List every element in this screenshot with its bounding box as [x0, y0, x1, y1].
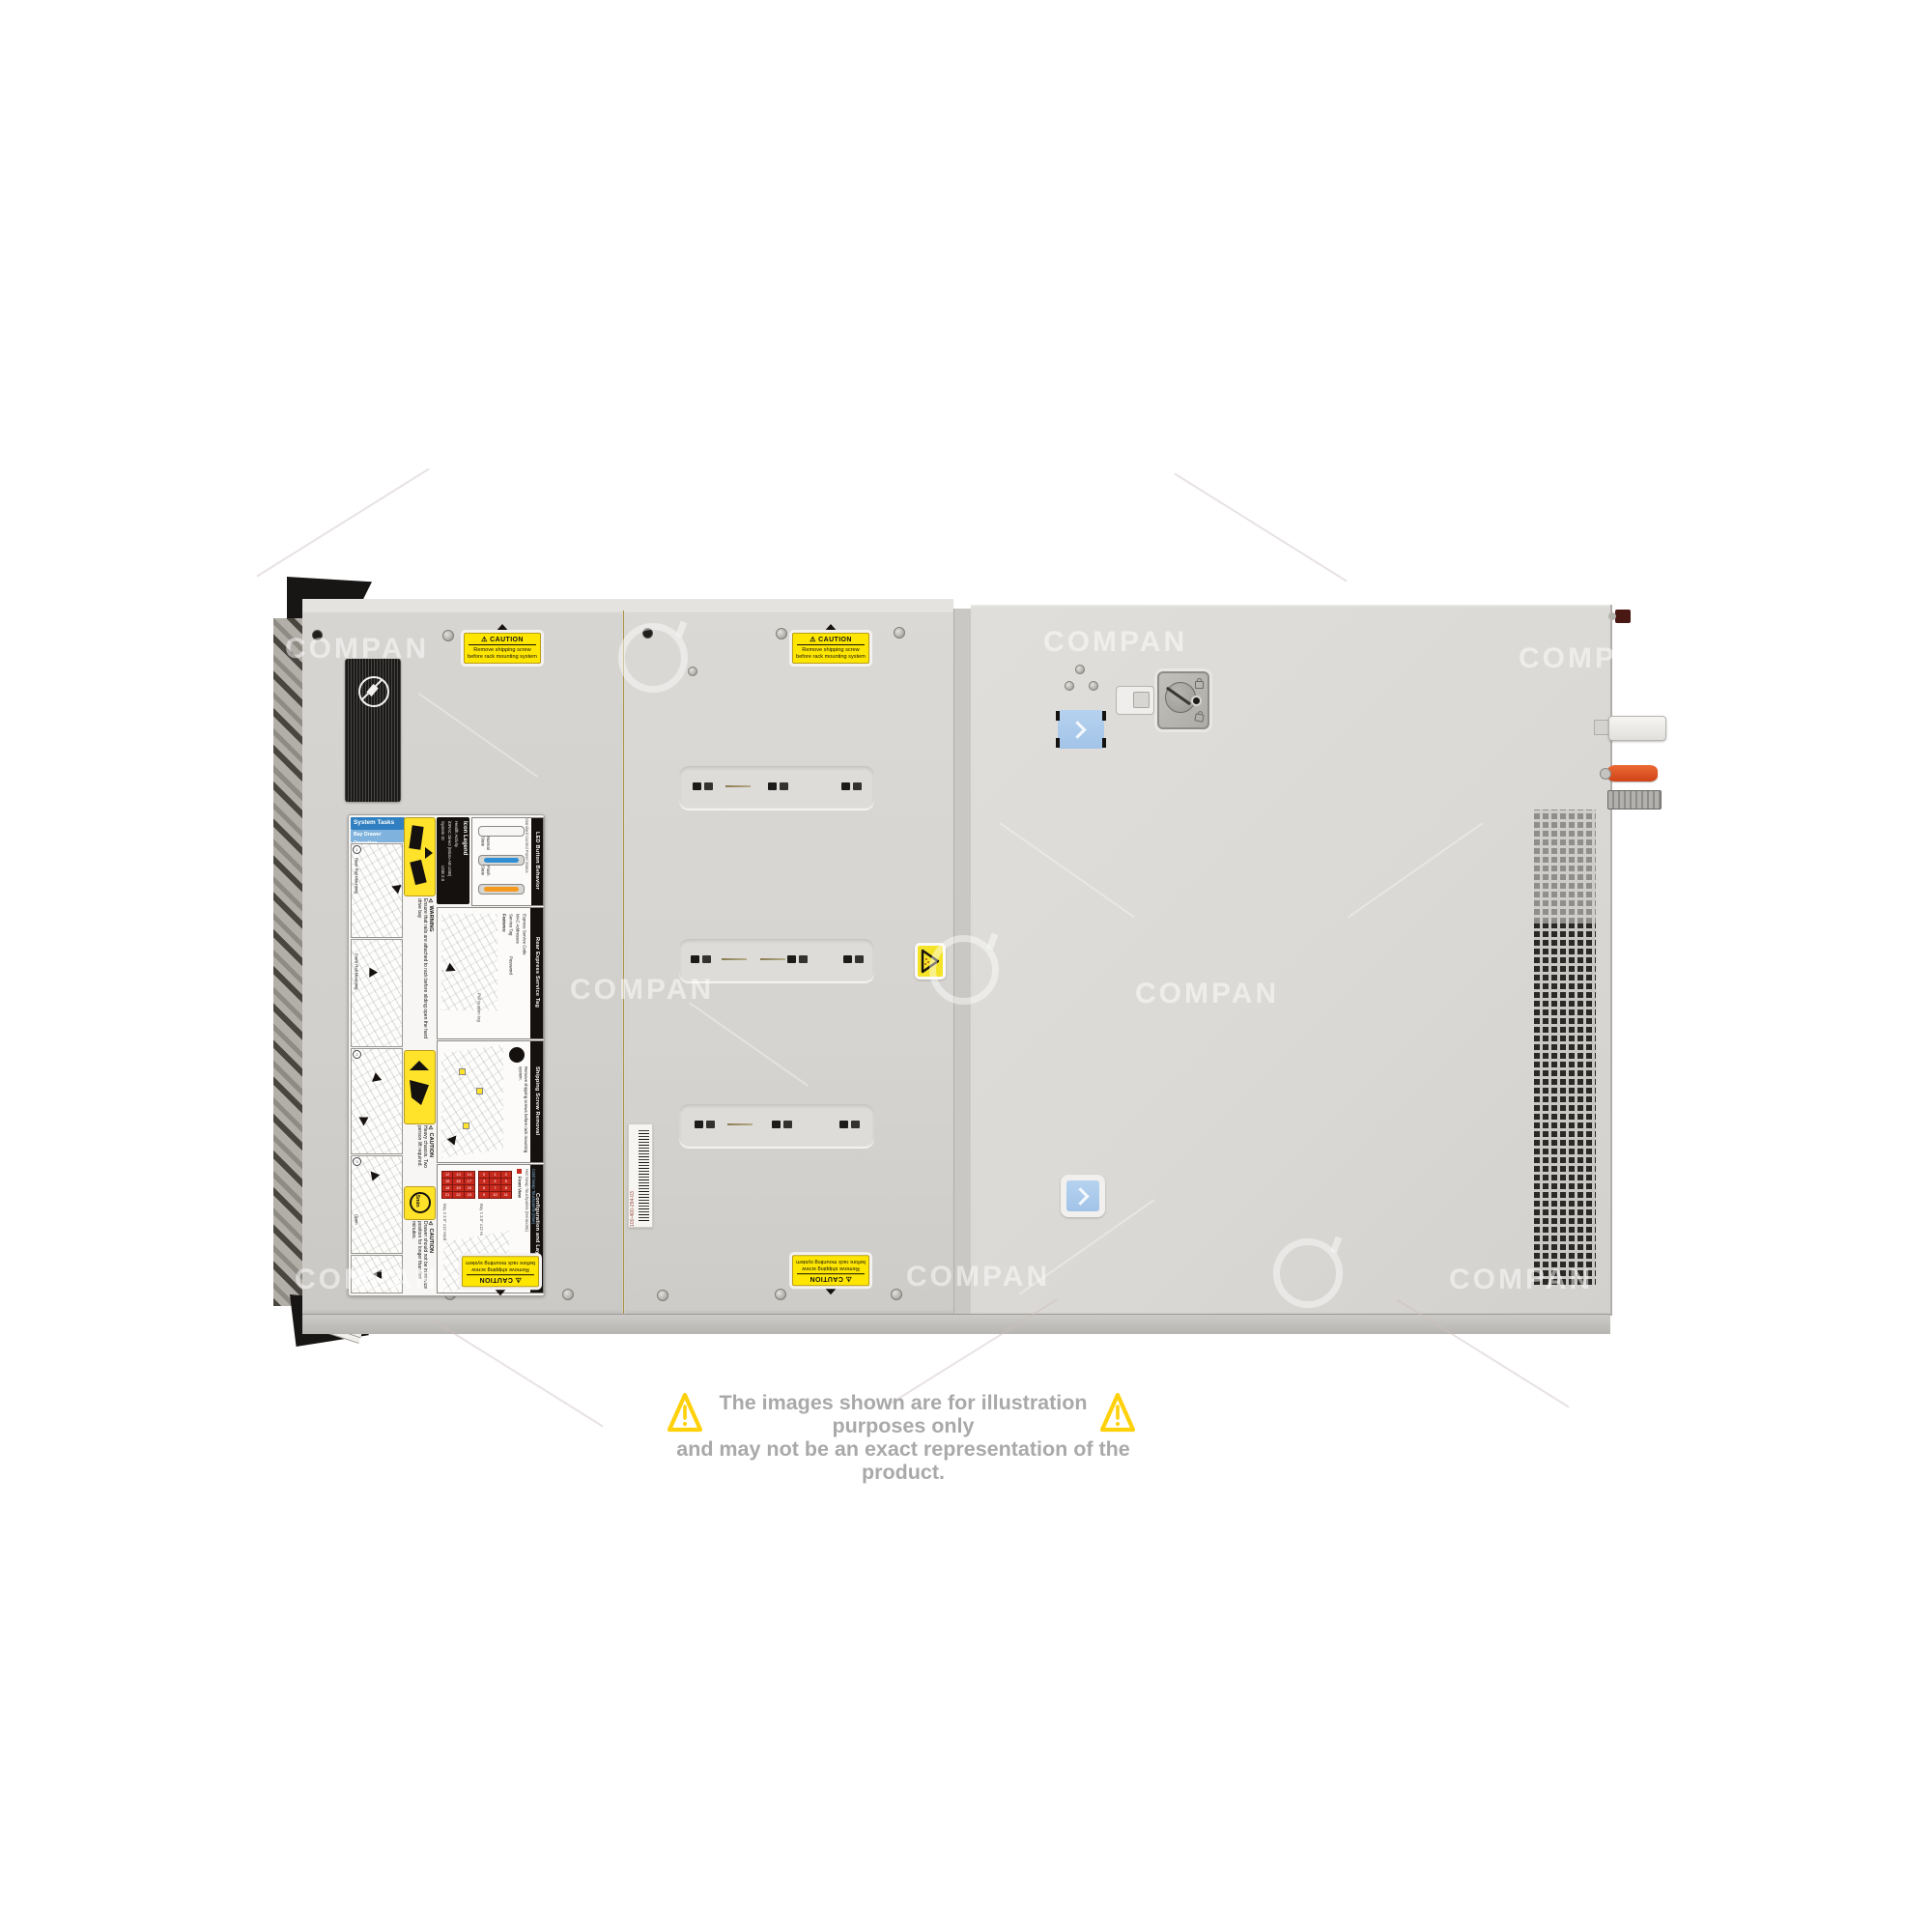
drive-bay-cell: 11: [501, 1192, 511, 1198]
pointer-triangle-icon: [495, 624, 510, 633]
disclaimer-line1: The images shown are for illustration pu…: [671, 1391, 1135, 1437]
watermark-line: [1174, 473, 1347, 582]
rear-tag-panel: Rear Express Service Tag Features: Servi…: [437, 907, 544, 1039]
caution-body: Heavy chassis. Two person lift required.: [416, 1125, 428, 1168]
shipping-screw-panel: Shipping Screw Removal Remove shipping s…: [437, 1040, 544, 1163]
seam-hazard-sticker: [915, 943, 946, 980]
drive-bay-cell: 8: [501, 1185, 511, 1191]
screw: [776, 628, 787, 639]
drive-bay-cell: 6: [479, 1185, 489, 1191]
screw: [775, 1289, 786, 1300]
icon-legend-item: Health Activity: [453, 821, 459, 879]
drive-bay-cell: 3: [479, 1179, 489, 1184]
bay-drawer-header: Bay Drawer Operation: [351, 830, 407, 842]
key-lock[interactable]: [1157, 671, 1209, 729]
service-label: System Tasks Bay Drawer Operation 1 Rear…: [348, 814, 545, 1296]
led-pill-normal: [478, 826, 525, 837]
screw: [891, 1289, 902, 1300]
corner-screw-pin: [1608, 612, 1616, 620]
led-pill-orange: [478, 884, 525, 895]
rivet: [1089, 681, 1098, 691]
grip-strip: [679, 1104, 874, 1148]
diagram-caption: Front Rail Mounting: [354, 953, 358, 1040]
caution-line2: before rack mounting system: [794, 654, 867, 661]
diagram-rear-rail: 1 Rear Rail Mounting: [351, 843, 403, 938]
caution-drawer-text: ⚠ CAUTION Drawer should not be in servic…: [404, 1221, 434, 1292]
product-photo-canvas: System Tasks Bay Drawer Operation 1 Rear…: [0, 0, 1932, 1932]
drive-bay-cell: 1: [490, 1172, 499, 1178]
screw-hole: [312, 630, 323, 640]
caution-sticker-bottom-middle: ⚠ CAUTION Remove shipping screw before r…: [792, 1255, 869, 1294]
caution-body: Drawer should not be in service position…: [411, 1221, 428, 1289]
screw-hole: [642, 628, 653, 639]
screw: [657, 1290, 668, 1301]
grip-strip: [679, 766, 874, 810]
drive-bay-cell: 9: [479, 1192, 489, 1198]
barcode: [639, 1130, 649, 1221]
barcode-text: 100-400-294-03: [630, 1128, 636, 1227]
drive-bay-cell: 2: [501, 1172, 511, 1178]
caution-title: ⚠ CAUTION: [797, 636, 865, 645]
shipping-text: Remove shipping screws before rack mount…: [515, 1066, 528, 1157]
locked-icon: [1195, 681, 1204, 689]
led-button-panel: LED Button Behavior Standard Control Pan…: [471, 817, 544, 906]
diagram-front-rail: Front Rail Mounting: [351, 939, 403, 1047]
drive-bay-cell: 16: [453, 1179, 463, 1184]
led-panel-subtitle: Standard Control Panel Status: [524, 818, 530, 903]
rivet: [1075, 665, 1085, 674]
chassis-bottom-lip: [302, 1314, 1610, 1334]
caution-lift-text: ⚠ CAUTION Heavy chassis. Two person lift…: [404, 1125, 434, 1183]
pointer-triangle-icon: [493, 1287, 508, 1295]
rivet: [1065, 681, 1074, 691]
caution-label: ⚠ CAUTION: [428, 1125, 434, 1183]
caution-sticker-top-middle: ⚠ CAUTION Remove shipping screw before r…: [792, 624, 869, 664]
drive-bay-cell: 4: [490, 1179, 499, 1184]
icon-legend-item: iDRAC Direct (Micro-AB USB): [446, 821, 452, 902]
release-button-bottom[interactable]: [1066, 1180, 1099, 1211]
slide-latch[interactable]: [1116, 686, 1154, 715]
rear-tag-feature: Password: [508, 956, 513, 995]
orange-release-lever[interactable]: [1607, 765, 1658, 781]
metal-latch[interactable]: [1607, 790, 1662, 810]
drive-bay-cell: 12: [442, 1172, 452, 1178]
diagram-caption: Open: [354, 1214, 358, 1249]
warning-rails-text: ⚠ WARNING Ensure that rails are attached…: [404, 898, 434, 1047]
system-tasks-title: System Tasks: [354, 819, 394, 826]
caution-line1: Remove shipping screw: [464, 1266, 537, 1273]
lid-hinge-seam: [953, 609, 973, 1314]
caution-title: ⚠ CAUTION: [797, 1273, 865, 1283]
drive-bay-cell: 18: [442, 1185, 452, 1191]
watermark-line: [256, 469, 429, 578]
diagram-caption: Rear Rail Mounting: [354, 858, 358, 933]
caution-line1: Remove shipping screw: [794, 647, 867, 654]
pointer-triangle-icon: [823, 624, 838, 633]
drive-bay-cell: 13: [453, 1172, 463, 1178]
five-min-text: 5min: [414, 1195, 420, 1207]
drive-bay-cell: 21: [442, 1192, 452, 1198]
lock-indicator: [1191, 696, 1202, 706]
drive-bay-cell: 10: [490, 1192, 499, 1198]
drive-bay-cell: 5: [501, 1179, 511, 1184]
drive-bay-cell: 7: [490, 1185, 499, 1191]
tip-hazard-sticker: [404, 817, 436, 896]
rear-tag-title: Rear Express Service Tag: [530, 908, 543, 1037]
vent-grid: [1534, 923, 1596, 1285]
crush-hazard-sticker: [404, 1050, 436, 1124]
unlocked-icon: [1194, 713, 1204, 723]
corner-screw: [1615, 610, 1631, 623]
diagram-slide-open: 2: [351, 1048, 403, 1154]
rear-tag-features-label: Features:: [501, 914, 506, 939]
led-state-label: Flash State: [480, 866, 491, 885]
five-min-badge: 5min: [404, 1186, 436, 1220]
drive-bay-cell: 14: [465, 1172, 474, 1178]
caution-line2: before rack mounting system: [466, 654, 539, 661]
bay2-grid: 121314151617181920212223: [441, 1171, 475, 1199]
caution-label: ⚠ CAUTION: [428, 1221, 434, 1292]
barcode-label: 100-400-294-03: [628, 1123, 653, 1228]
drive-bay-cell: 20: [465, 1185, 474, 1191]
drive-bay-cell: 17: [465, 1179, 474, 1184]
slide-latch-knob: [1133, 692, 1150, 708]
stop-icon: [509, 1047, 525, 1063]
rear-tag-feature: Service Tag: [508, 914, 513, 952]
caution-line2: before rack mounting system: [794, 1259, 867, 1265]
release-button-bottom-bezel: [1061, 1175, 1105, 1217]
drive-bay-cell: 22: [453, 1192, 463, 1198]
icon-legend-item: USB 2.0: [440, 866, 445, 902]
front-bezel-edge: [273, 618, 306, 1306]
warning-body: Ensure that rails are attached to rack b…: [416, 898, 428, 1038]
screw: [562, 1289, 574, 1300]
caution-line2: before rack mounting system: [464, 1260, 537, 1266]
shipping-title: Shipping Screw Removal: [530, 1041, 543, 1160]
pointer-triangle-icon: [823, 1286, 838, 1294]
icon-legend-title: Icon Legend: [462, 821, 468, 900]
warning-label: ⚠ WARNING: [428, 898, 434, 1047]
disclaimer-text: The images shown are for illustration pu…: [671, 1391, 1135, 1484]
hazard-triangle-icon: [920, 949, 941, 974]
rear-tag-feature: Express Service Code: [522, 914, 526, 981]
caution-title: ⚠ CAUTION: [469, 636, 536, 645]
drive-bay-cell: 23: [465, 1192, 474, 1198]
screw: [442, 630, 454, 641]
caution-line1: Remove shipping screw: [794, 1265, 867, 1272]
led-pill-blue: [478, 855, 525, 866]
caution-line1: Remove shipping screw: [466, 647, 539, 654]
caution-sticker-top-left: ⚠ CAUTION Remove shipping screw before r…: [464, 624, 541, 664]
diagram-open-bay: 3 Open: [351, 1155, 403, 1254]
vent-grid-upper: [1534, 810, 1596, 923]
pull-handle[interactable]: [1608, 716, 1666, 741]
release-button-top[interactable]: [1058, 710, 1104, 749]
icon-legend-item: System ID: [440, 821, 445, 860]
warning-triangle-icon: [1100, 1391, 1135, 1434]
drive-bay-cell: 15: [442, 1179, 452, 1184]
config-front-view: Front View: [517, 1177, 522, 1215]
lever-pin: [1600, 768, 1611, 780]
chevron-right-icon: [1071, 1187, 1089, 1205]
led-panel-title: LED Button Behavior: [531, 818, 543, 903]
icon-legend-panel: Icon Legend System ID iDRAC Direct (Micr…: [437, 817, 469, 904]
chevron-right-icon: [1068, 721, 1086, 738]
diagram-close: [351, 1255, 403, 1293]
regulatory-label: [345, 659, 401, 802]
system-tasks-header: System Tasks: [351, 817, 407, 830]
screw: [894, 627, 905, 639]
bay1-grid: 01234567891011: [478, 1171, 512, 1199]
watermark-line: [430, 1319, 603, 1428]
disclaimer-line2: and may not be an exact representation o…: [671, 1437, 1135, 1484]
rear-tag-note: Pull to open tag: [476, 993, 481, 1036]
caution-sticker-bottom-left: ⚠ CAUTION Remove shipping screw before r…: [462, 1256, 539, 1295]
grip-strip: [679, 939, 874, 982]
rear-tag-feature: MAC Addresses: [515, 914, 520, 964]
caution-title: ⚠ CAUTION: [467, 1274, 534, 1284]
screw: [688, 667, 697, 676]
drive-bay-cell: 19: [453, 1185, 463, 1191]
led-state-label: Normal State: [480, 837, 491, 856]
drive-bay-cell: 0: [479, 1172, 489, 1178]
